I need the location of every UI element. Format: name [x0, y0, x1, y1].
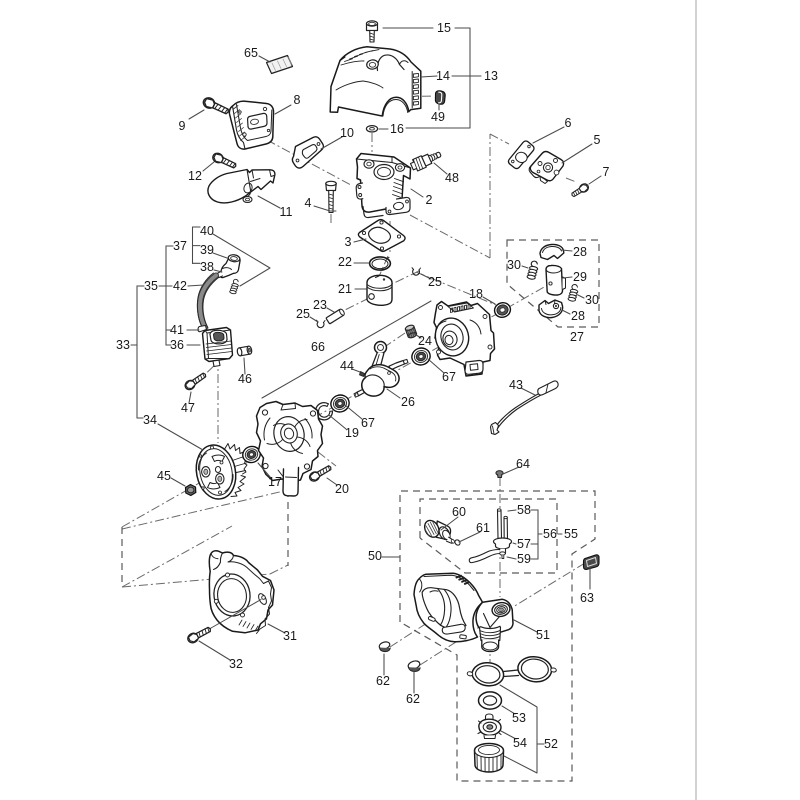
svg-text:22: 22	[338, 255, 352, 269]
svg-text:63: 63	[580, 591, 594, 605]
svg-text:31: 31	[283, 629, 297, 643]
svg-text:25: 25	[428, 275, 442, 289]
svg-text:50: 50	[368, 549, 382, 563]
svg-text:49: 49	[431, 110, 445, 124]
svg-text:5: 5	[594, 133, 601, 147]
svg-text:47: 47	[181, 401, 195, 415]
svg-text:8: 8	[294, 93, 301, 107]
svg-text:26: 26	[401, 395, 415, 409]
svg-text:41: 41	[170, 323, 184, 337]
svg-text:25: 25	[296, 307, 310, 321]
svg-text:54: 54	[513, 736, 527, 750]
svg-text:14: 14	[436, 69, 450, 83]
svg-text:59: 59	[517, 552, 531, 566]
svg-text:30: 30	[585, 293, 599, 307]
svg-text:56: 56	[543, 527, 557, 541]
svg-text:6: 6	[565, 116, 572, 130]
svg-text:61: 61	[476, 521, 490, 535]
svg-text:28: 28	[573, 245, 587, 259]
svg-text:10: 10	[340, 126, 354, 140]
svg-text:29: 29	[573, 270, 587, 284]
svg-text:28: 28	[571, 309, 585, 323]
svg-text:20: 20	[335, 482, 349, 496]
svg-text:36: 36	[170, 338, 184, 352]
svg-text:23: 23	[313, 298, 327, 312]
svg-text:53: 53	[512, 711, 526, 725]
svg-text:12: 12	[188, 169, 202, 183]
svg-text:60: 60	[452, 505, 466, 519]
svg-text:11: 11	[280, 205, 293, 219]
svg-text:52: 52	[544, 737, 558, 751]
svg-text:62: 62	[406, 692, 420, 706]
svg-text:58: 58	[517, 503, 531, 517]
svg-text:42: 42	[173, 279, 187, 293]
svg-text:19: 19	[345, 426, 359, 440]
svg-text:3: 3	[345, 235, 352, 249]
svg-text:13: 13	[484, 69, 498, 83]
svg-text:65: 65	[244, 46, 258, 60]
svg-text:37: 37	[173, 239, 187, 253]
svg-text:45: 45	[157, 469, 171, 483]
svg-text:48: 48	[445, 171, 459, 185]
svg-text:33: 33	[116, 338, 130, 352]
svg-text:39: 39	[200, 243, 214, 257]
svg-text:66: 66	[311, 340, 325, 354]
svg-text:38: 38	[200, 260, 214, 274]
svg-text:64: 64	[516, 457, 530, 471]
svg-text:40: 40	[200, 224, 214, 238]
svg-text:7: 7	[603, 165, 610, 179]
svg-text:32: 32	[229, 657, 243, 671]
svg-text:17: 17	[268, 475, 282, 489]
svg-text:15: 15	[437, 21, 451, 35]
svg-text:16: 16	[390, 122, 404, 136]
svg-text:43: 43	[509, 378, 523, 392]
svg-text:46: 46	[238, 372, 252, 386]
svg-text:57: 57	[517, 537, 531, 551]
svg-text:55: 55	[564, 527, 578, 541]
svg-text:21: 21	[338, 282, 352, 296]
svg-text:9: 9	[179, 119, 186, 133]
svg-text:51: 51	[536, 628, 550, 642]
svg-text:35: 35	[144, 279, 158, 293]
svg-text:30: 30	[507, 258, 521, 272]
svg-text:4: 4	[305, 196, 312, 210]
svg-text:2: 2	[426, 193, 433, 207]
svg-text:27: 27	[570, 330, 584, 344]
svg-text:67: 67	[442, 370, 456, 384]
svg-text:67: 67	[361, 416, 375, 430]
svg-text:62: 62	[376, 674, 390, 688]
svg-text:24: 24	[418, 334, 432, 348]
svg-text:44: 44	[340, 359, 354, 373]
svg-text:34: 34	[143, 413, 157, 427]
svg-text:18: 18	[469, 287, 483, 301]
